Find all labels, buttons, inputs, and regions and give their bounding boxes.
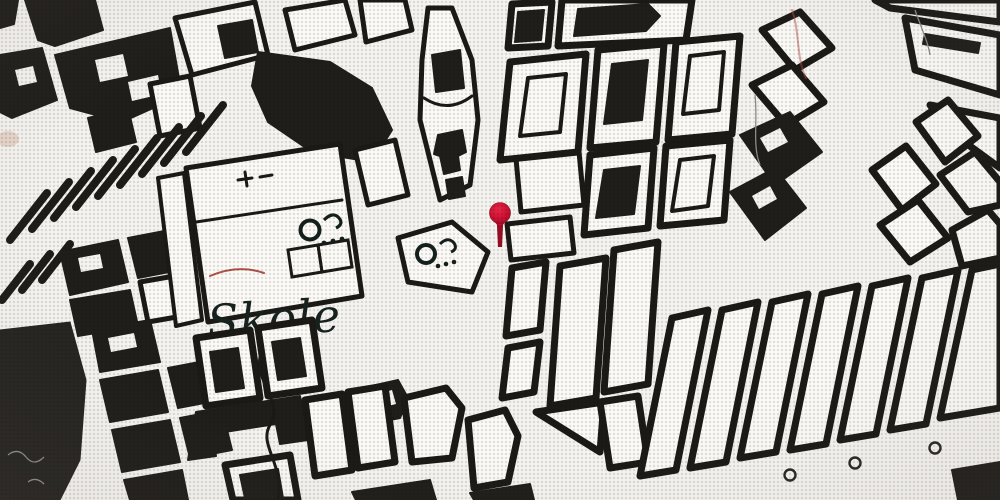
map-canvas[interactable]: Skole	[0, 0, 1000, 500]
pin-head	[490, 203, 511, 224]
school-block: Skole	[158, 144, 362, 349]
pin-adjacent-block	[507, 217, 574, 260]
